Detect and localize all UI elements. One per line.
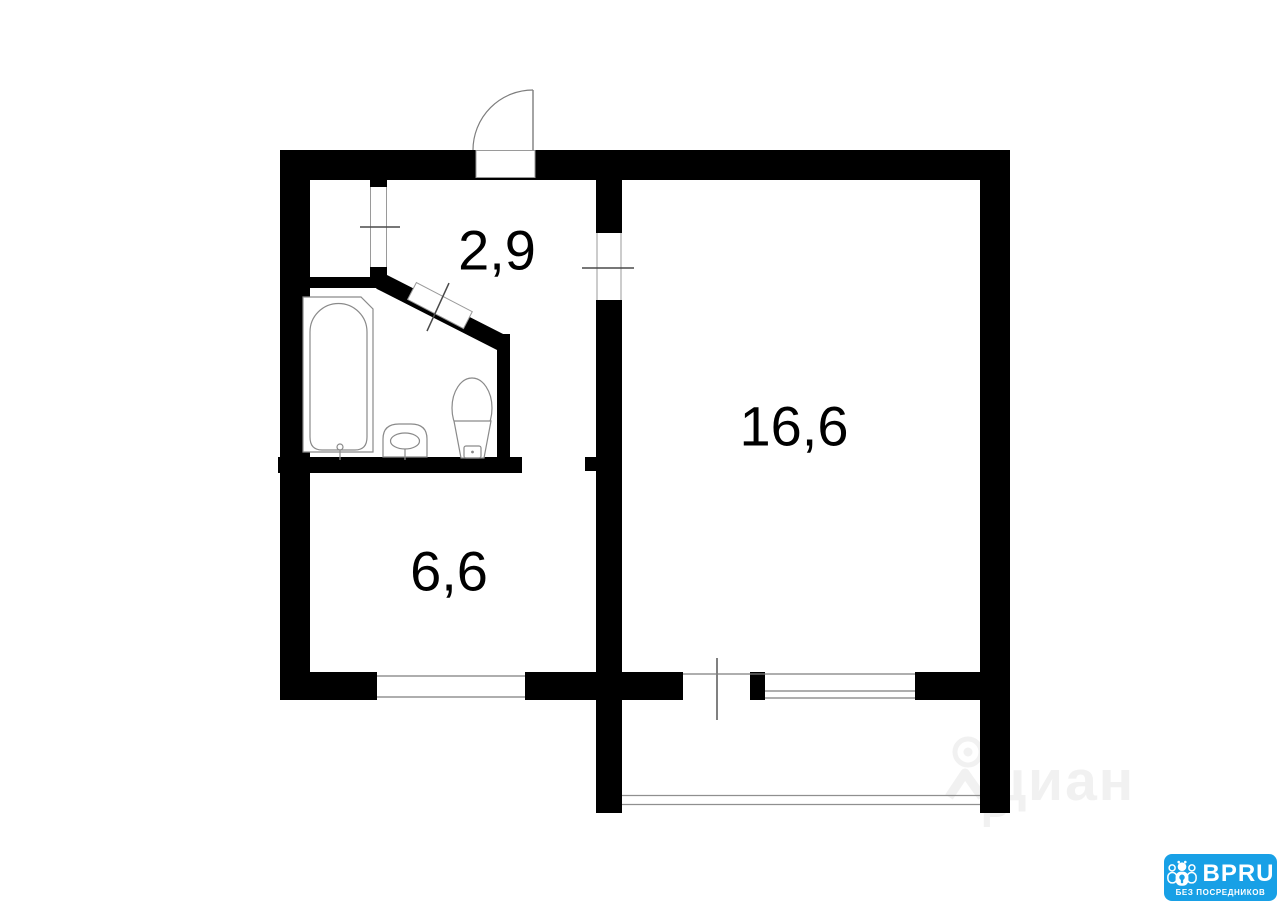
brand-name: BPRU (1202, 862, 1274, 886)
bathtub-icon (303, 297, 373, 460)
niche-partition (360, 187, 400, 267)
people-group-icon (1166, 860, 1198, 887)
brand-badge: BPRU БЕЗ ПОСРЕДНИКОВ (1164, 854, 1277, 901)
room-label-living-room: 16,6 (740, 394, 849, 459)
hallway-doorway (582, 233, 634, 300)
sink-icon (383, 424, 427, 460)
balcony-railing (622, 796, 981, 805)
room-label-kitchen: 6,6 (410, 539, 488, 604)
floor-plan-drawing (0, 0, 1280, 905)
entrance-door-icon (473, 90, 535, 178)
room-label-hallway: 2,9 (458, 218, 536, 283)
toilet-icon (452, 378, 492, 458)
floor-plan-page: циан Р (0, 0, 1280, 905)
niche-stub-top (370, 178, 387, 188)
kitchen-window-icon (377, 672, 525, 700)
wall-bath-right (497, 334, 510, 457)
brand-tagline: БЕЗ ПОСРЕДНИКОВ (1176, 889, 1266, 897)
wall-top (280, 150, 1010, 180)
balcony-door-icon (683, 658, 750, 720)
door-jamb-stub (585, 457, 597, 471)
wall-bath-top (292, 277, 387, 288)
wall-bath-bottom (278, 457, 522, 473)
wall-right (980, 150, 1010, 813)
